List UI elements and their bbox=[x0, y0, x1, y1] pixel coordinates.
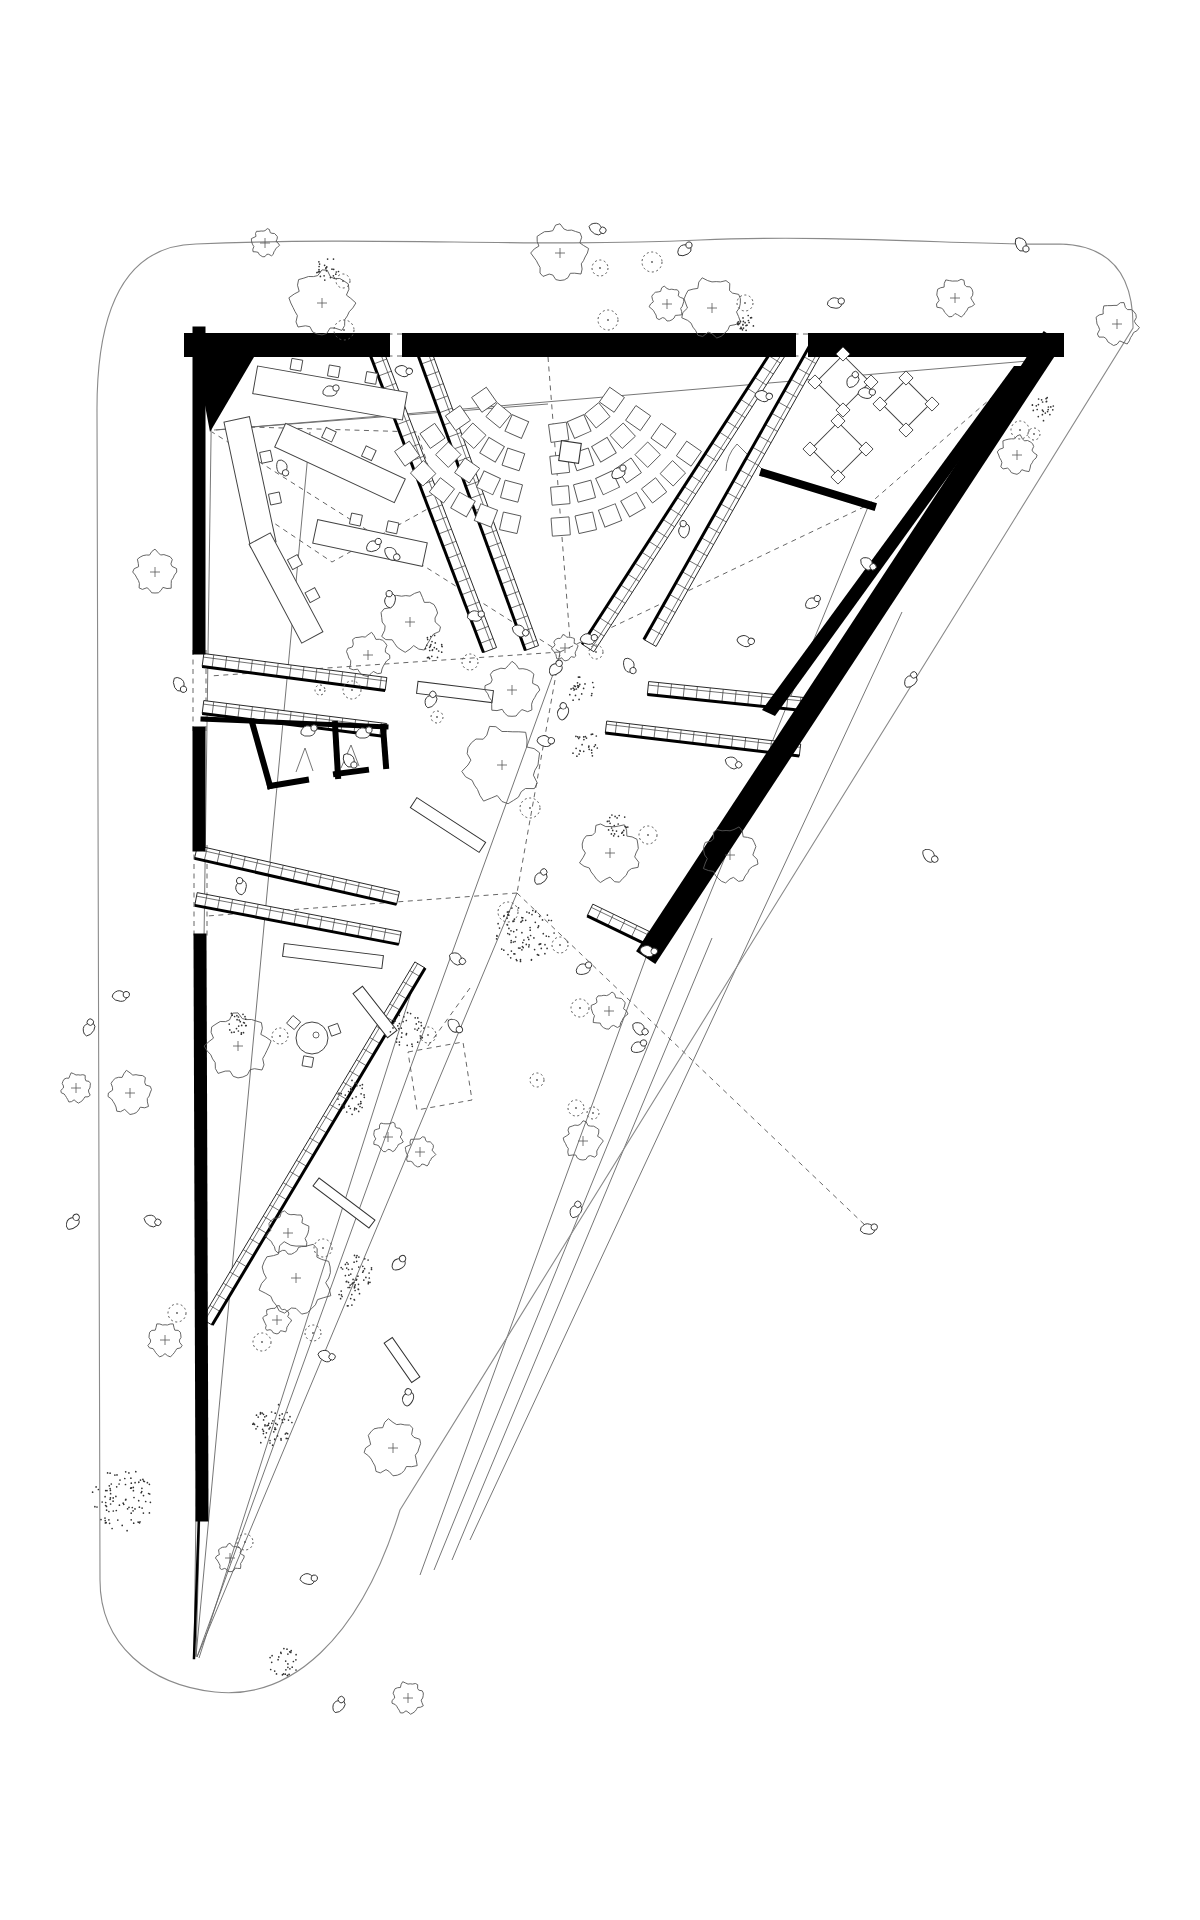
architectural-site-plan bbox=[0, 0, 1200, 1920]
doors bbox=[726, 444, 737, 471]
plan-svg bbox=[0, 0, 1200, 1920]
